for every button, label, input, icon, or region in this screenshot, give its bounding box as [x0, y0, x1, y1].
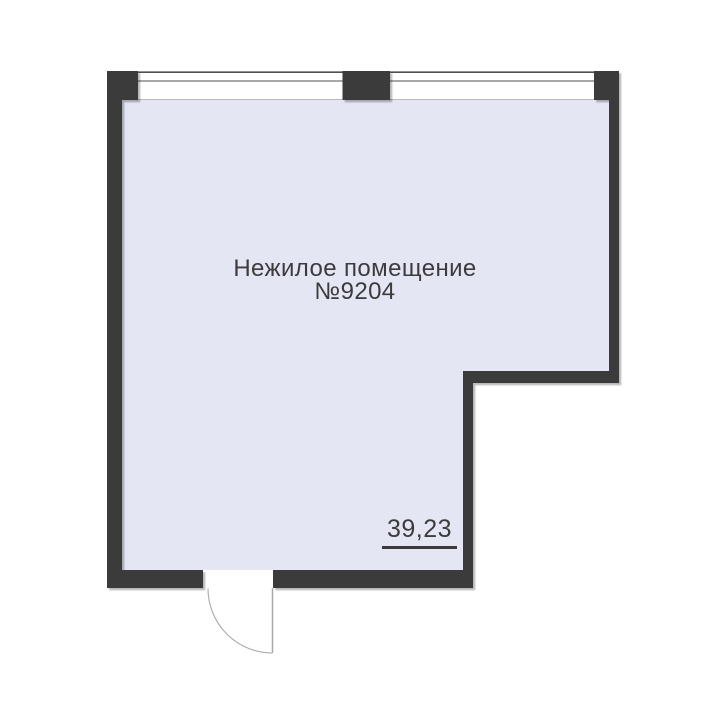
door-swing-icon	[208, 588, 273, 653]
room-floor	[122, 100, 610, 570]
room-number: №9204	[110, 280, 600, 303]
floorplan-canvas: Нежилое помещение №9204 39,23	[0, 0, 726, 726]
wall-right-lower	[463, 371, 473, 588]
wall-left	[107, 71, 122, 588]
wall-bottom-right	[273, 570, 473, 588]
room-label: Нежилое помещение №9204	[110, 257, 600, 303]
area-underline	[382, 546, 457, 549]
room-name: Нежилое помещение	[110, 257, 600, 280]
door-arc	[208, 589, 273, 654]
wall-pier-top-middle	[343, 71, 391, 100]
window-top-right	[390, 72, 594, 81]
floorplan-drawing	[0, 0, 726, 726]
area-value: 39,23	[380, 517, 459, 542]
wall-step-horizontal	[463, 371, 619, 383]
wall-bottom-left	[107, 570, 203, 588]
wall-right-upper	[609, 71, 619, 383]
wall-pier-top-left	[107, 71, 138, 100]
window-top-left	[138, 72, 343, 81]
